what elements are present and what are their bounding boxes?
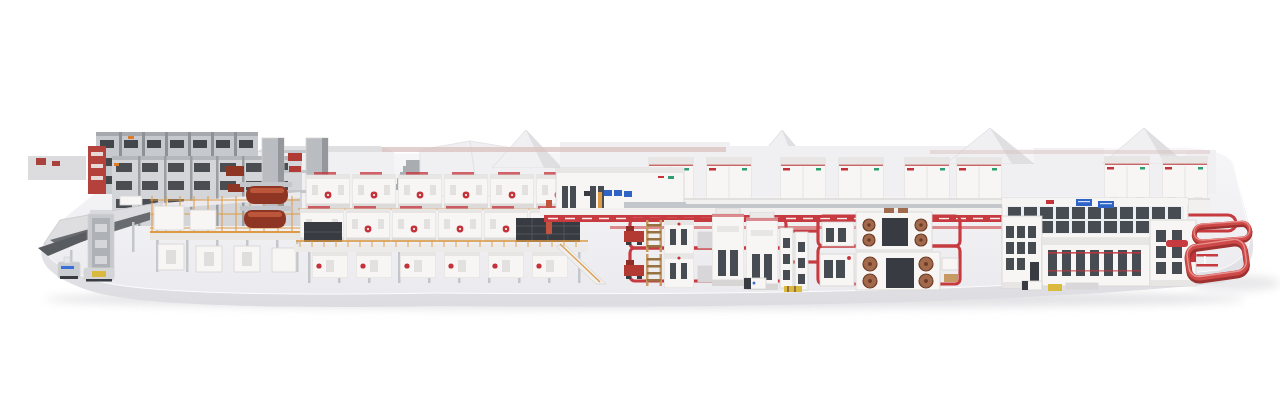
factory-render-canvas (0, 0, 1280, 405)
stored-roll (226, 166, 244, 176)
ground-cabinet (272, 248, 296, 272)
pallet (784, 286, 802, 292)
agv-cargo (92, 271, 106, 277)
mezzanine-floor-edge (294, 244, 588, 252)
pallet (1048, 284, 1062, 291)
wall-base-tint (930, 150, 1210, 154)
far-left-red-unit (52, 161, 60, 166)
building-block (1034, 148, 1104, 196)
prefeeder-machine (664, 254, 694, 288)
splicer-cabinet (154, 206, 184, 230)
dock-cabinet (120, 196, 142, 205)
splicer-cabinet (190, 210, 216, 230)
transfer-table (1066, 283, 1098, 289)
hmi-screens (604, 190, 632, 197)
plant-render (0, 0, 1280, 405)
gantry-red-carrier (288, 153, 302, 161)
display-screen (1076, 199, 1092, 206)
agv-robot (58, 262, 80, 278)
loop-spur (1166, 240, 1188, 247)
gantry-red-carrier (289, 166, 301, 172)
far-left-red-unit (36, 158, 46, 165)
display-screen (1098, 201, 1114, 208)
pallet-stack (944, 274, 958, 282)
feeder-tower (712, 208, 744, 286)
prefeeder-machine (664, 220, 694, 254)
mezzanine-floor (150, 232, 302, 240)
